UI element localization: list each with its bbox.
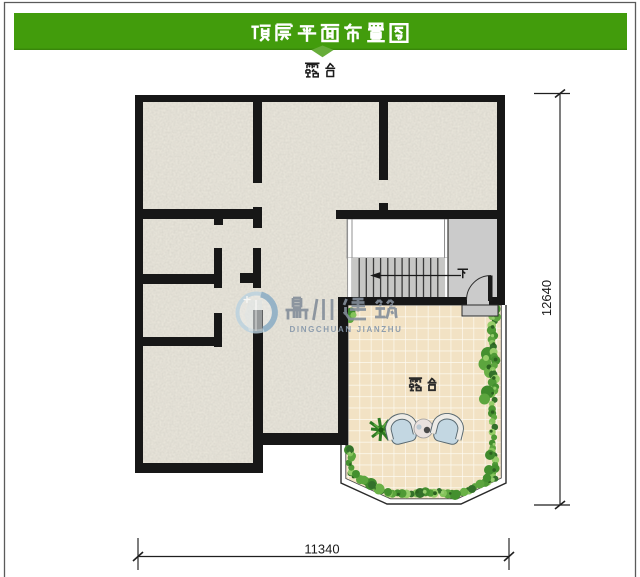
svg-text:11340: 11340 [304, 542, 339, 557]
svg-text:DINGCHUAN JIANZHU: DINGCHUAN JIANZHU [290, 325, 403, 334]
svg-text:12640: 12640 [539, 280, 554, 316]
